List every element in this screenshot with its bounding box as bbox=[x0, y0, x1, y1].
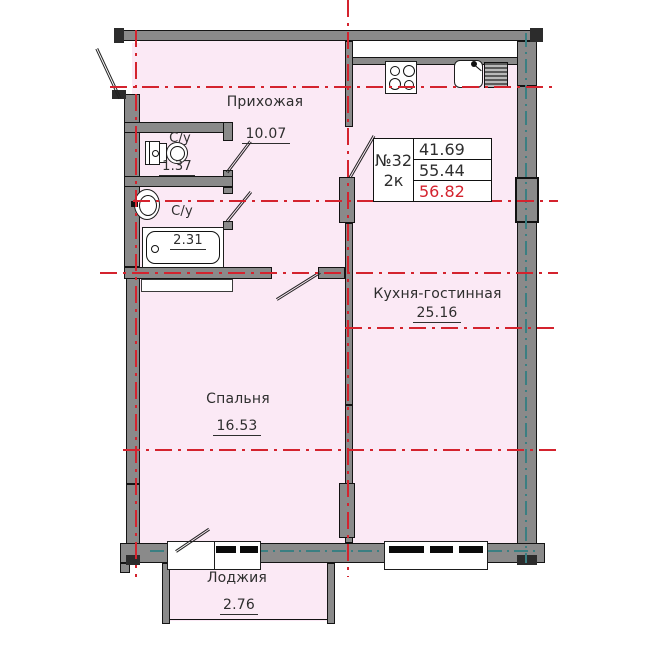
kitchen-window-band bbox=[389, 546, 483, 553]
top-wall-right-cap bbox=[530, 28, 543, 42]
loggia-left-wall bbox=[162, 563, 170, 624]
axis-horizontal-4 bbox=[345, 327, 558, 329]
right-wall bbox=[517, 41, 537, 565]
unit-number: №32 bbox=[375, 151, 412, 170]
room-area-bathroom: 2.31 bbox=[166, 234, 210, 250]
bath-recess bbox=[141, 279, 233, 292]
room-label-kitchen-living: Кухня-гостинная bbox=[360, 287, 515, 302]
kitchen-drainer-icon bbox=[484, 62, 508, 88]
left-wall-lower bbox=[126, 267, 140, 565]
right-wall-bottom-cap bbox=[517, 555, 537, 565]
info-box-unit-cell: №32 2к bbox=[374, 139, 414, 201]
kitchen-top-gap bbox=[352, 41, 518, 57]
entrance-top-jamb bbox=[114, 28, 124, 43]
room-label-bathroom: С/у bbox=[162, 205, 202, 219]
top-wall bbox=[123, 30, 543, 41]
stove-icon bbox=[385, 61, 417, 94]
info-box-areas: 41.69 55.44 56.82 bbox=[414, 139, 491, 201]
axis-horizontal-1 bbox=[110, 86, 558, 88]
unit-rooms-count: 2к bbox=[384, 171, 404, 190]
area-row-1: 41.69 bbox=[414, 139, 491, 160]
room-label-loggia: Лоджия bbox=[202, 571, 272, 586]
bath-right-wall-a bbox=[223, 187, 233, 194]
axis-horizontal-3 bbox=[100, 272, 558, 274]
wc-right-wall-a bbox=[223, 122, 233, 141]
left-wall-tick bbox=[126, 483, 140, 485]
bedroom-window-band-gap bbox=[236, 546, 240, 553]
balcony-unit-divider bbox=[214, 541, 215, 570]
room-label-hallway: Прихожая bbox=[200, 95, 330, 110]
loggia-right-wall bbox=[327, 563, 335, 624]
kitchen-living-fill bbox=[353, 64, 517, 543]
info-box: №32 2к 41.69 55.44 56.82 bbox=[373, 138, 492, 202]
room-area-hallway: 10.07 bbox=[240, 127, 292, 144]
room-label-bedroom: Спальня bbox=[203, 392, 273, 407]
right-wall-glazing-line bbox=[525, 33, 527, 563]
wc-bath-divider-wall bbox=[124, 176, 233, 187]
kitchen-sink-icon bbox=[454, 60, 483, 88]
axis-horizontal-5 bbox=[123, 449, 558, 451]
floor-plan-canvas: №32 2к 41.69 55.44 56.82 Прихожая 10.07 … bbox=[0, 0, 646, 646]
area-row-3: 56.82 bbox=[414, 181, 491, 201]
entrance-door-leaf bbox=[95, 48, 121, 99]
room-area-kitchen-living: 25.16 bbox=[411, 306, 463, 323]
axis-vertical-left bbox=[135, 30, 137, 577]
axis-horizontal-2 bbox=[133, 200, 558, 202]
kitchen-window-band-gap-2 bbox=[453, 546, 459, 553]
loggia-outer-edge bbox=[170, 619, 327, 620]
room-label-wc: С/у bbox=[160, 132, 200, 146]
room-area-wc: 1.37 bbox=[157, 160, 197, 176]
room-area-bedroom: 16.53 bbox=[211, 419, 263, 436]
area-row-2: 55.44 bbox=[414, 160, 491, 181]
room-area-loggia: 2.76 bbox=[213, 598, 265, 615]
left-wall-bottom-cap bbox=[126, 555, 140, 565]
hallway-bedroom-fill bbox=[140, 41, 345, 543]
kitchen-window-band-gap-1 bbox=[424, 546, 430, 553]
